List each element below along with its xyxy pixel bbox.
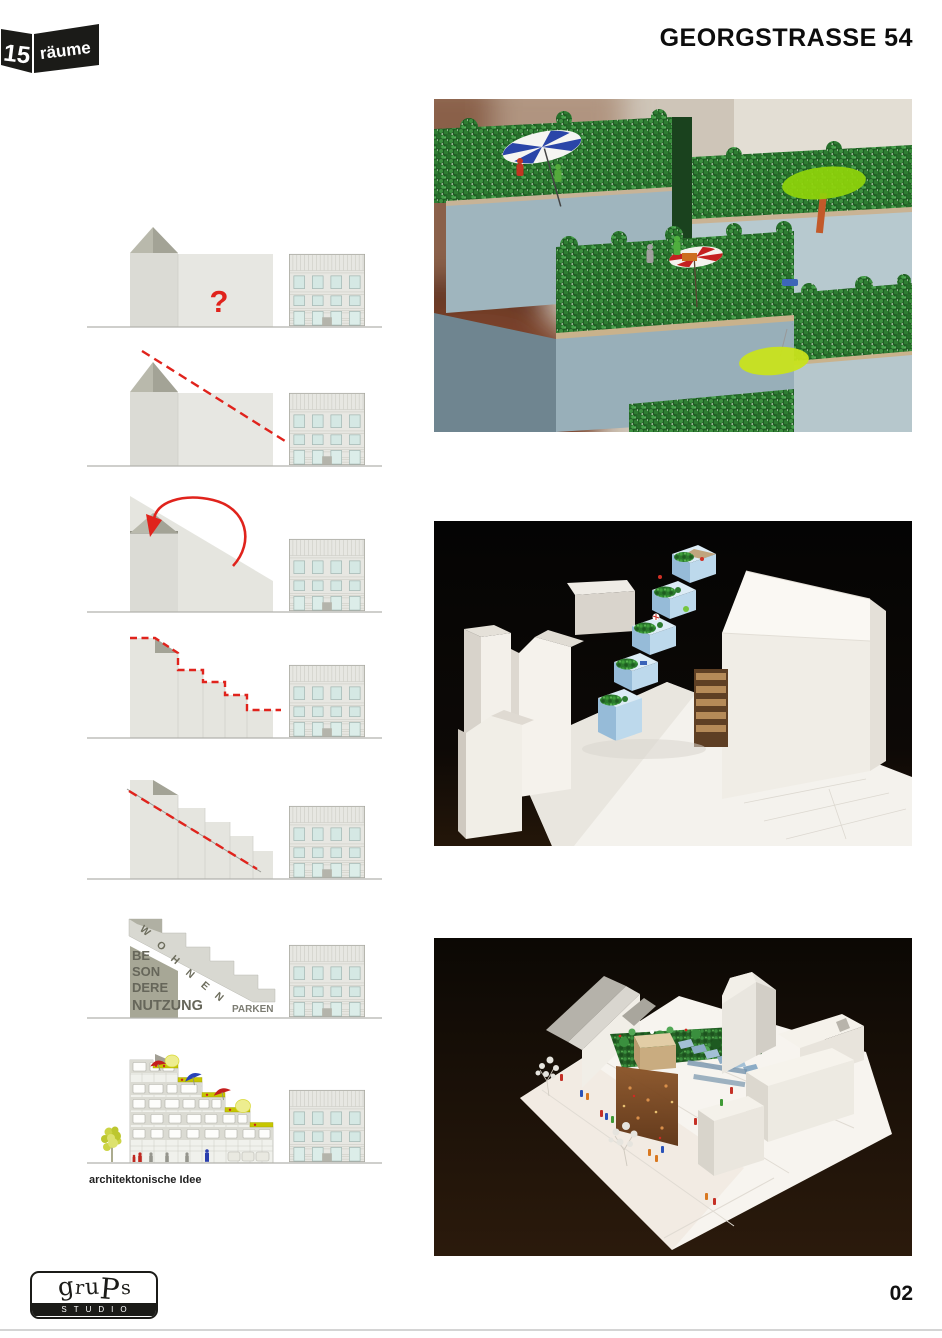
page-number: 02 [890,1282,913,1306]
page-title: GEORGSTRASSE 54 [660,24,913,53]
svg-text:BE: BE [132,948,150,963]
svg-text:SON: SON [132,964,160,979]
massing-diagram-steps [85,630,385,742]
neighbor-facade [289,945,364,1016]
portfolio-page: 15 räume GEORGSTRASSE 54 ? [0,0,942,1338]
new-volume [178,393,273,466]
massing-diagram-question: ? [85,225,385,331]
window-bands [130,1060,273,1140]
context-building-back [567,580,635,635]
tower-ground-shadow [582,739,706,759]
svg-text:N: N [212,990,226,1004]
massing-diagram-program: W O H N E N BE SON DERE NUTZUNG PARKEN [85,898,385,1024]
grups-letter: u [84,1277,99,1300]
grups-logo-name: g r u P s [32,1273,156,1303]
svg-text:DERE: DERE [132,980,168,995]
question-mark-label: ? [210,284,229,319]
massing-diagram-elevation [85,1040,385,1172]
blue-car [782,279,798,286]
diagram-caption: architektonische Idee [89,1174,202,1186]
brand-number: 15 [2,40,32,70]
tan-courtyard-slots [694,669,728,747]
neighbor-facade [289,539,364,610]
shop-fronts [228,1152,269,1161]
svg-text:N: N [183,967,197,981]
grups-letter: P [99,1274,121,1305]
neighbor-facade [289,393,364,464]
brand-logo: 15 räume [0,21,102,79]
neighbor-facade [289,806,364,877]
neighbor-facade [289,1090,364,1161]
existing-house [130,227,178,327]
massing-diagram-wedge [85,480,385,616]
massing-diagram-envelope [85,345,385,471]
bottom-rule [0,1329,942,1331]
massing-diagram-diagonal [85,765,385,883]
grups-logo-subtitle: STUDIO [32,1303,156,1316]
context-building-right-gabled [722,571,886,799]
project-tan-tower [634,1033,676,1071]
stepped-volume [130,638,273,738]
orange-crate [682,253,697,261]
grups-letter: g [56,1273,75,1300]
model-photo-closeup [434,99,912,432]
roof-remnant [153,780,178,795]
existing-house [130,362,178,466]
stepped-volume [130,780,273,879]
neighbor-facade [289,254,364,325]
grups-letter: r [74,1278,84,1298]
building-outline [130,1060,273,1163]
parken-label: PARKEN [232,1004,273,1015]
grups-studio-logo: g r u P s STUDIO [30,1271,158,1319]
model-photo-aerial-courtyard [434,521,912,846]
svg-text:E: E [198,979,211,993]
neighbor-facade [289,665,364,736]
svg-text:NUTZUNG: NUTZUNG [132,998,203,1014]
model-photo-aerial-street [434,938,912,1256]
tree [101,1127,122,1163]
grups-letter: s [120,1278,131,1298]
